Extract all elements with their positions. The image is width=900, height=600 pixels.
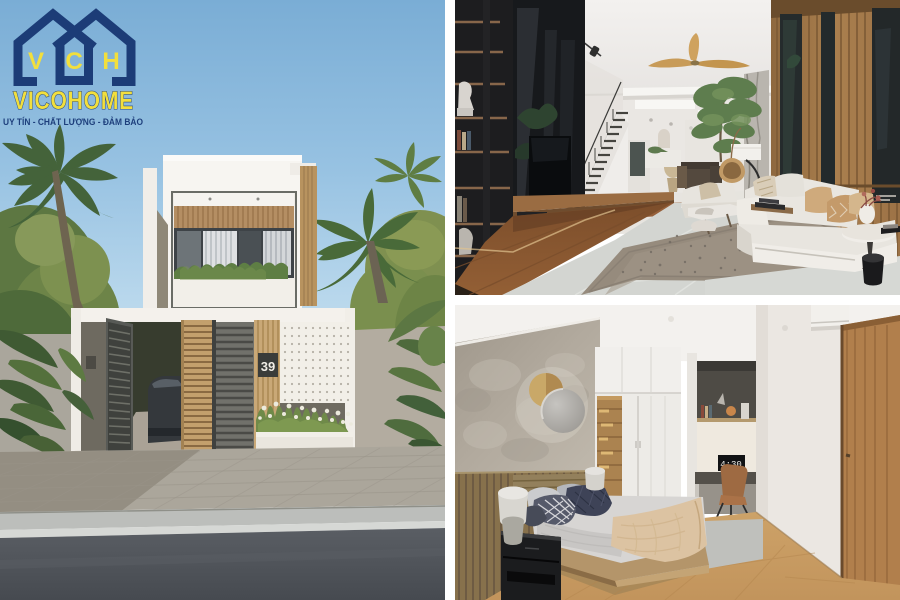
svg-text:V: V: [28, 48, 44, 75]
svg-text:H: H: [102, 48, 119, 75]
svg-text:VICOHOME: VICOHOME: [13, 87, 134, 115]
svg-text:39: 39: [261, 359, 275, 374]
svg-text:UY TÍN - CHẤT LƯỢNG - ĐẢM BẢO: UY TÍN - CHẤT LƯỢNG - ĐẢM BẢO: [3, 116, 143, 128]
svg-text:C: C: [65, 48, 82, 75]
